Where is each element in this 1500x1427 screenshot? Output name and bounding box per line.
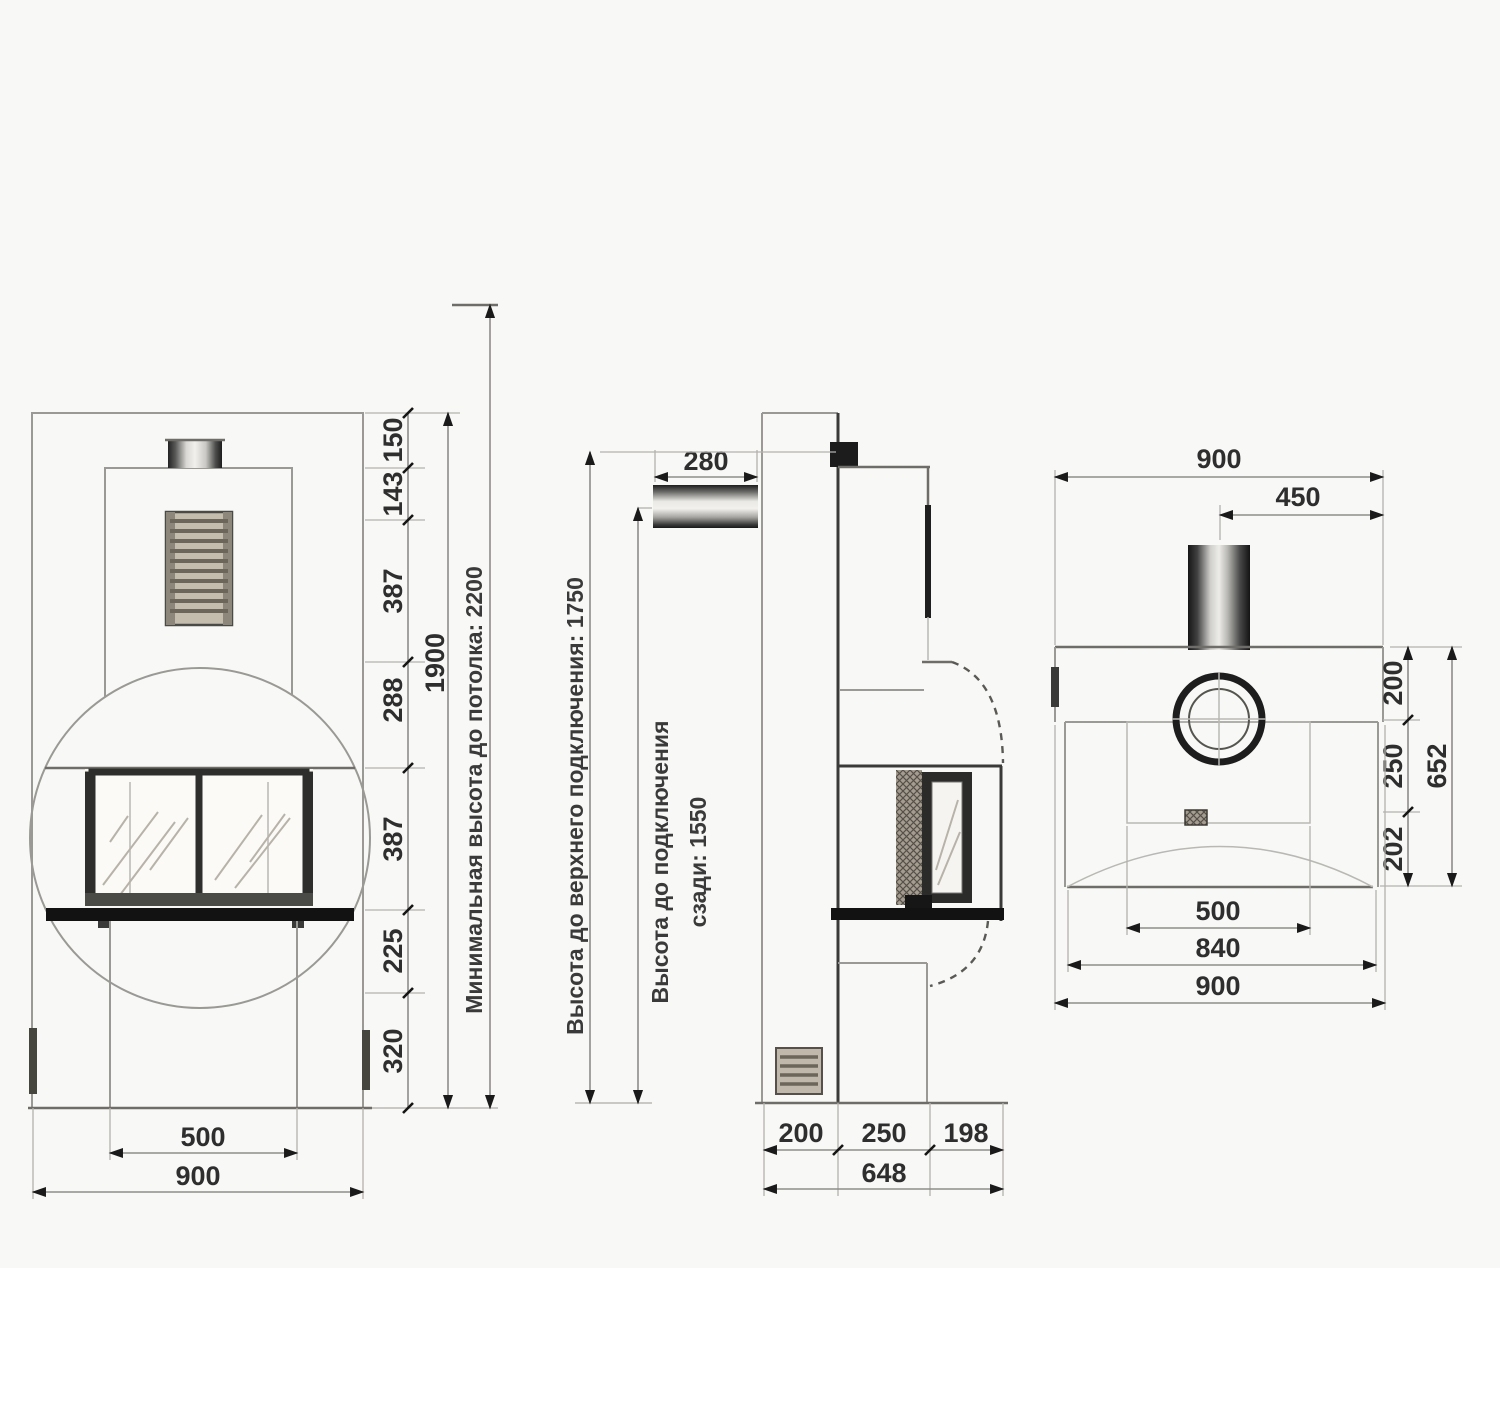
- front-flue-pipe: [168, 440, 222, 468]
- dim-total-height-1900: 1900: [420, 633, 450, 693]
- dim-depth-648: 648: [861, 1158, 906, 1188]
- dim-rear-body-width: 840: [1195, 933, 1240, 963]
- side-firebox-hatch: [896, 770, 922, 905]
- side-hearth-shelf: [831, 908, 1004, 920]
- dim-chain-387a: 387: [378, 568, 408, 613]
- dim-depth-250: 250: [861, 1118, 906, 1148]
- side-rear-flue-stub: [653, 485, 758, 528]
- dim-rear-flue-offset: 450: [1275, 482, 1320, 512]
- dim-rear-hearth-width: 500: [1195, 896, 1240, 926]
- note-rear-connection-height-line1: Высота до подключения: [647, 720, 673, 1003]
- front-hearth-shelf: [46, 908, 354, 921]
- dim-chain-150: 150: [378, 417, 408, 462]
- dim-depth-200: 200: [778, 1118, 823, 1148]
- dim-depth-198: 198: [943, 1118, 988, 1148]
- dim-rear-250: 250: [1378, 743, 1408, 788]
- note-top-connection-height: Высота до верхнего подключения: 1750: [562, 577, 588, 1035]
- dim-chain-387b: 387: [378, 816, 408, 861]
- dim-stub-280: 280: [683, 446, 728, 476]
- dim-chain-288: 288: [378, 677, 408, 722]
- dim-chain-320: 320: [378, 1028, 408, 1073]
- note-rear-connection-height-line2: сзади: 1550: [685, 797, 711, 928]
- paper-background: [0, 0, 1500, 1268]
- dim-front-overall-width: 900: [175, 1161, 220, 1191]
- scanned-technical-drawing: 150 143 387 288 387 225 320 1900 Минимал…: [0, 0, 1500, 1427]
- side-top-connection-stub: [830, 442, 858, 467]
- dim-front-hearth-width: 500: [180, 1122, 225, 1152]
- rear-flue-pipe: [1188, 545, 1250, 650]
- side-air-grille: [776, 1048, 822, 1094]
- dim-chain-225: 225: [378, 928, 408, 973]
- dim-rear-overall-width-top: 900: [1196, 444, 1241, 474]
- dim-chain-143: 143: [378, 471, 408, 516]
- front-air-grille: [166, 512, 232, 625]
- dim-rear-202: 202: [1378, 826, 1408, 871]
- dim-rear-200: 200: [1378, 660, 1408, 705]
- dim-rear-652: 652: [1422, 743, 1452, 788]
- front-glass-doors: [85, 769, 313, 906]
- dim-rear-overall-width-bottom: 900: [1195, 971, 1240, 1001]
- note-min-ceiling-height: Минимальная высота до потолка: 2200: [461, 566, 487, 1014]
